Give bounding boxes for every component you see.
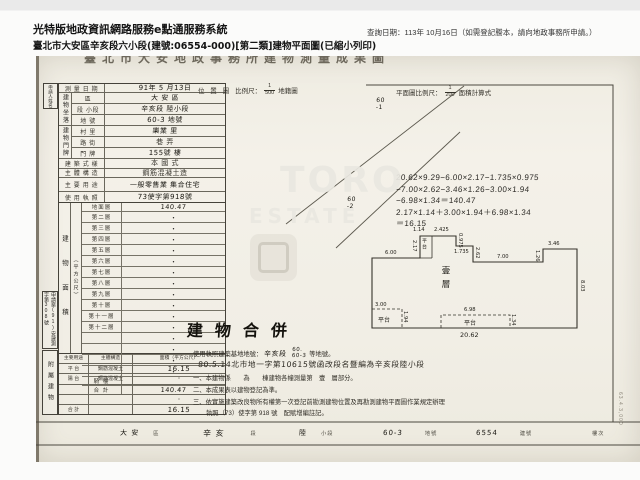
annex-row-structure bbox=[89, 395, 133, 404]
footer-subsection: 陸 小段 bbox=[299, 425, 333, 441]
floor-value: ・ bbox=[122, 300, 225, 310]
door-plate-label: 門 牌 bbox=[72, 148, 105, 158]
license-site-lots-line: 使用執照建築基地地號： 辛亥段 60. 60-3 等地號。 bbox=[193, 348, 334, 359]
scanned-survey-document: 臺北市大安地政事務所建物測量成果圖 測 量 日 期 91年 5 月13日 建物坐… bbox=[36, 56, 640, 462]
annex-row-label bbox=[59, 385, 89, 394]
area-calculation: 20.62×9.29−6.00×2.17−1.735×0.975 −7.00×2… bbox=[396, 172, 539, 230]
structure-label: 主 體 構 造 bbox=[59, 169, 105, 177]
dim-1.34: 1.34 bbox=[510, 314, 516, 326]
dim-1.26: 1.26 bbox=[534, 250, 540, 262]
section-value: 辛亥段 陸小段 bbox=[105, 104, 226, 114]
dim-0.975: 0.975 bbox=[457, 233, 463, 248]
floor-label: 第六層 bbox=[82, 256, 122, 266]
plan-frame bbox=[366, 85, 613, 422]
building-site-group-label: 建物坐落 bbox=[59, 93, 72, 125]
location-map-scale: 位 置 圖 比例尺： 1 500 地籍圖 bbox=[198, 84, 298, 96]
dim-2.425: 2.425 bbox=[434, 227, 449, 233]
dim-1.94: 1.94 bbox=[402, 311, 408, 323]
floor-value: ・ bbox=[122, 267, 225, 277]
lot-numbers-stack: 60. 60-3 bbox=[291, 348, 306, 359]
floor-label: 第十層 bbox=[82, 300, 122, 310]
print-code: 63.4.3,000 bbox=[617, 392, 623, 426]
floor-value: 140.47 bbox=[122, 203, 226, 211]
floor-area-unit: （平方公尺） bbox=[71, 203, 82, 353]
dim-7.00: 7.00 bbox=[497, 254, 509, 260]
annex-row-structure: 鋼筋混凝土 bbox=[89, 374, 133, 383]
road-label: 路 街 bbox=[72, 137, 105, 147]
watermark-estate: ESTATE bbox=[249, 204, 360, 228]
dim-20.62: 20.62 bbox=[460, 331, 479, 339]
usage-label: 主 要 用 途 bbox=[59, 178, 105, 191]
dim-3.00: 3.00 bbox=[375, 302, 387, 308]
annex-header-usage: 主要用途 bbox=[59, 354, 89, 363]
calc-line: −6.98×1.34＝140.47 bbox=[396, 195, 540, 207]
footer-building-number: 6554 建號 bbox=[476, 425, 532, 441]
structure-value: 鋼筋混凝土造 bbox=[105, 169, 225, 177]
license-value: 73使字第918號 bbox=[105, 192, 226, 202]
floor-label bbox=[82, 344, 122, 354]
form-title: 臺北市大安地政事務所建物測量成果圖 bbox=[84, 56, 504, 65]
application-case-box: 申請案(91)安建測字第308號 bbox=[42, 291, 58, 349]
query-date: 查詢日期：113年 10月16日（如需登記謄本，請向地政事務所申請。） bbox=[367, 27, 596, 38]
village-label: 村 里 bbox=[72, 126, 105, 136]
footer-section: 辛 亥 段 bbox=[203, 425, 257, 441]
old-section-name-hw: 辛亥段 bbox=[264, 349, 287, 359]
section-label: 段 小段 bbox=[72, 104, 105, 114]
village-value: 樂業 里 bbox=[105, 126, 226, 136]
license-label: 使 用 執 照 bbox=[59, 192, 105, 202]
watermark-logo bbox=[250, 234, 297, 281]
door-plate-value: 155號 樓 bbox=[105, 148, 226, 158]
note-3b: 執照（73）使字第 918 號 配賦增編註記。 bbox=[206, 408, 328, 417]
floor-label: 第二層 bbox=[82, 212, 122, 222]
floor-label: 第四層 bbox=[82, 234, 122, 244]
note-1: 一、本建物係 為 棟建物各幢測量第 壹 層部分。 bbox=[193, 373, 357, 382]
calc-line: 20.62×9.29−6.00×2.17−1.735×0.975 bbox=[396, 172, 540, 184]
dim-2.62: 2.62 bbox=[474, 247, 480, 259]
platform-left-label: 平台 bbox=[378, 315, 390, 324]
floor-label: 第八層 bbox=[82, 278, 122, 288]
floor-value: ・ bbox=[122, 223, 225, 233]
parcel-label-60-1: 60 -1 bbox=[376, 98, 386, 111]
floor-label: 第七層 bbox=[82, 267, 122, 277]
plan-scale: 平面圖比例尺： 1 200 面積計算式 bbox=[396, 86, 491, 98]
note-2: 二、本成果表以建物登記為準。 bbox=[193, 385, 281, 394]
building-site-group: 建物坐落 區 大 安 區 段 小段 辛亥段 陸小段 地 號 60-3 地號 bbox=[59, 93, 225, 126]
floor-one-label: 壹層 bbox=[440, 266, 452, 293]
floor-value: ・ bbox=[122, 256, 225, 266]
annex-header-structure: 主體構造 bbox=[89, 354, 133, 363]
applicant-name-box: 申請人姓名 bbox=[43, 83, 58, 109]
dim-6.98: 6.98 bbox=[464, 307, 476, 313]
footer-lot-number: 60-3 地號 bbox=[383, 425, 437, 441]
browser-top-strip bbox=[0, 0, 640, 11]
table-section-basic: 測 量 日 期 91年 5 月13日 建物坐落 區 大 安 區 段 小段 辛亥段… bbox=[59, 84, 225, 202]
platform-top-label: 平台 bbox=[421, 238, 428, 250]
floor-value: ・ bbox=[122, 245, 225, 255]
lot-number-label: 地 號 bbox=[72, 115, 105, 125]
footer-district: 大 安 區 bbox=[120, 425, 159, 441]
watermark-toro: TORO bbox=[280, 160, 405, 201]
location-scale-suffix: 地籍圖 bbox=[278, 85, 298, 95]
dim-2.17: 2.17 bbox=[411, 240, 417, 252]
floor-label: 第五層 bbox=[82, 245, 122, 255]
district-label: 區 bbox=[72, 93, 105, 103]
calc-line: 2.17×1.14＋3.00×1.94＋6.98×1.34 bbox=[396, 207, 540, 219]
dim-3.46: 3.46 bbox=[548, 241, 560, 247]
floor-label: 第十一層 bbox=[82, 311, 122, 321]
annex-row-label: 平 台 bbox=[59, 364, 89, 373]
floor-label: 第十二層 bbox=[82, 322, 122, 332]
floor-label: 第三層 bbox=[82, 223, 122, 233]
form-title-clipped: 臺北市大安地政事務所建物測量成果圖 bbox=[84, 56, 504, 65]
dim-1.735: 1.735 bbox=[454, 249, 469, 255]
document-title: 臺北市大安區辛亥段六小段(建號:06554-000)[第二類]建物平面圖(已縮小… bbox=[33, 38, 376, 52]
plan-scale-suffix: 面積計算式 bbox=[459, 87, 492, 97]
building-merge-title: 建物合併 bbox=[186, 317, 299, 341]
floor-value: ・ bbox=[122, 212, 225, 222]
dim-1.14: 1.14 bbox=[413, 227, 425, 233]
floor-area-group-label: 建物面積 bbox=[59, 203, 71, 353]
usage-value: 一般零售業 集合住宅 bbox=[105, 178, 226, 191]
building-address-group-label: 建物門牌 bbox=[59, 126, 72, 158]
lot-number-value: 60-3 地號 bbox=[105, 115, 226, 125]
dim-8.03: 8.03 bbox=[579, 280, 585, 292]
survey-date-label: 測 量 日 期 bbox=[59, 84, 105, 92]
floor-value: ・ bbox=[122, 234, 225, 244]
building-style-label: 建 築 式 樣 bbox=[59, 159, 105, 167]
floor-value: ・ bbox=[122, 278, 225, 288]
location-scale-prefix: 比例尺： bbox=[235, 85, 261, 95]
note-3: 三、依實施建築改良物所有權第一次登記前勘測建物位置及再勘測建物平面圖作業規定辦理 bbox=[193, 397, 445, 406]
plan-scale-prefix: 平面圖比例尺： bbox=[396, 87, 442, 97]
floor-value: ・ bbox=[122, 289, 225, 299]
rename-note-handwritten: 80.5.14北市地一字第10615號函改段名暨編為辛亥段陸小段 bbox=[198, 359, 425, 370]
floor-label: 第九層 bbox=[82, 289, 122, 299]
building-address-group: 建物門牌 村 里 樂業 里 路 街 巷 弄 門 牌 155號 樓 bbox=[59, 126, 225, 159]
platform-middle-label: 平台 bbox=[464, 318, 476, 327]
annex-total-structure bbox=[89, 405, 133, 414]
building-style-value: 本 國 式 bbox=[105, 159, 225, 167]
annex-total-label: 合 計 bbox=[59, 405, 89, 414]
location-map-label: 位 置 圖 bbox=[198, 85, 231, 95]
floor-label: 地面層 bbox=[82, 203, 122, 211]
app-title: 光特版地政資訊網路服務e點通服務系統 bbox=[33, 21, 227, 37]
annex-row-label bbox=[59, 395, 89, 404]
annex-building-box: 附屬建物 bbox=[42, 350, 58, 415]
location-scale-fraction: 1 500 bbox=[264, 84, 275, 96]
annex-row-label: 陽 台 bbox=[59, 374, 89, 383]
calc-line: −7.00×2.62−3.46×1.26−3.00×1.94 bbox=[396, 184, 540, 196]
plan-scale-fraction: 1 200 bbox=[445, 86, 456, 98]
road-value: 巷 弄 bbox=[105, 137, 225, 147]
dim-6.00: 6.00 bbox=[385, 250, 397, 256]
floor-label bbox=[82, 333, 122, 343]
footer-floor: 樓次 bbox=[592, 425, 604, 441]
annex-row-structure: 鋼筋混凝土 bbox=[89, 364, 133, 373]
